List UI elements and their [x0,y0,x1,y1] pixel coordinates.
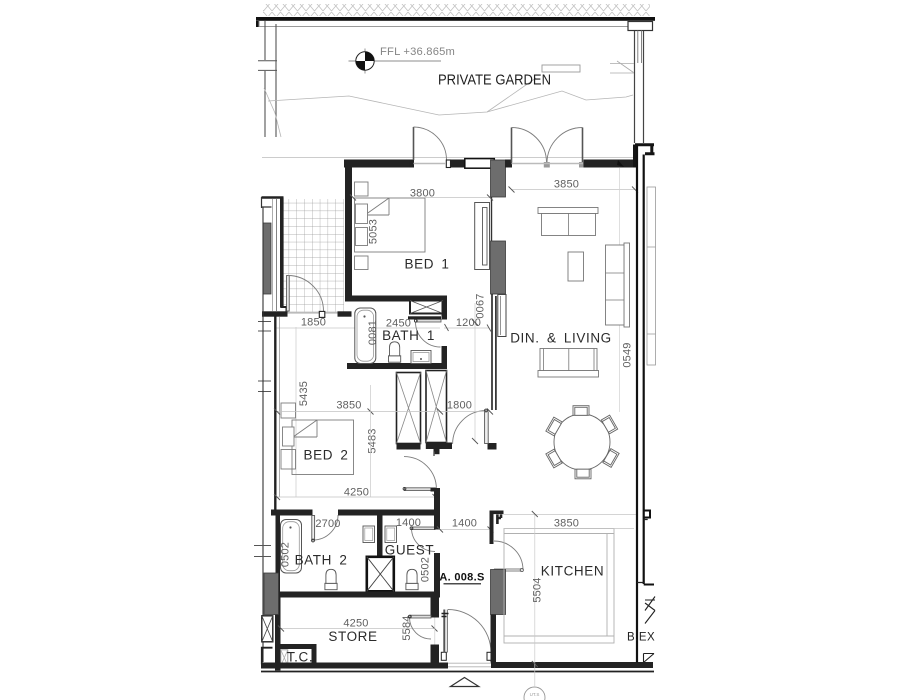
svg-text:A. 008.S: A. 008.S [439,572,484,584]
svg-text:3850: 3850 [554,179,579,191]
svg-text:5435: 5435 [298,381,310,406]
svg-text:0067: 0067 [475,293,487,318]
svg-text:PRIVATE GARDEN: PRIVATE GARDEN [438,72,551,89]
svg-text:1400: 1400 [452,518,477,530]
svg-text:BATH 2: BATH 2 [295,553,348,568]
svg-text:DIN. & LIVING: DIN. & LIVING [510,331,612,346]
svg-text:1850: 1850 [301,317,326,329]
svg-text:3850: 3850 [336,400,361,412]
svg-text:B.EX: B.EX [627,632,655,644]
svg-text:2450: 2450 [386,318,411,330]
svg-text:5053: 5053 [368,219,380,244]
svg-text:0502: 0502 [280,542,292,567]
svg-text:1800: 1800 [447,400,472,412]
svg-text:0081: 0081 [367,320,379,345]
svg-text:4250: 4250 [343,618,368,630]
svg-text:FFL +36.865m: FFL +36.865m [380,46,455,58]
svg-text:BATH 1: BATH 1 [382,328,435,343]
svg-text:5504: 5504 [532,577,544,602]
svg-text:5584: 5584 [401,615,413,640]
svg-text:0502: 0502 [420,557,432,582]
svg-text:0549: 0549 [622,342,634,367]
svg-text:UT.S: UT.S [530,692,540,697]
svg-text:BED 1: BED 1 [404,257,449,272]
svg-text:3850: 3850 [554,518,579,530]
svg-text:2700: 2700 [315,518,340,530]
svg-text:GUEST: GUEST [385,543,435,558]
svg-text:5483: 5483 [367,428,379,453]
svg-text:1400: 1400 [396,517,421,529]
svg-text:BED 2: BED 2 [303,448,348,463]
svg-text:STORE: STORE [328,629,377,644]
svg-text:KITCHEN: KITCHEN [541,564,604,579]
svg-text:T.C.: T.C. [287,650,313,665]
